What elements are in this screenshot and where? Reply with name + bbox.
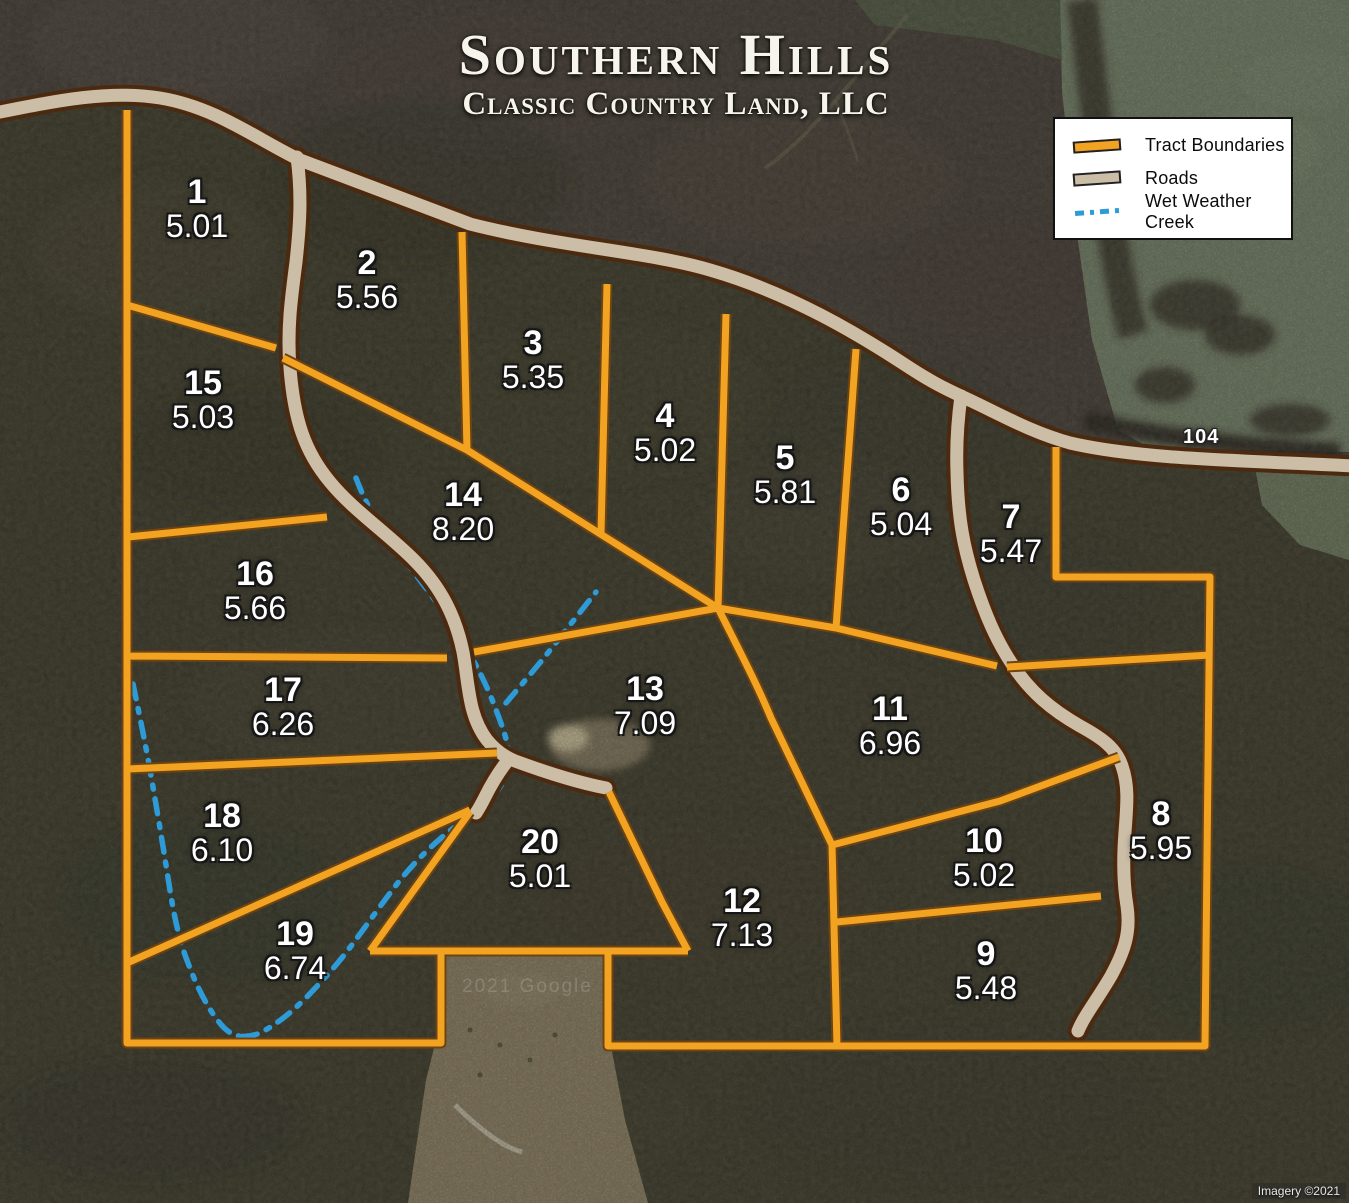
map-legend: Tract Boundaries Roads Wet Weather Creek: [1053, 117, 1293, 240]
map-title-block: Southern Hills Classic Country Land, LLC: [459, 26, 894, 123]
legend-item-tract-boundaries: Tract Boundaries: [1073, 129, 1291, 162]
creek-swatch-icon: [1073, 204, 1122, 219]
legend-label: Roads: [1145, 168, 1198, 189]
page-subtitle: Classic Country Land, LLC: [459, 86, 894, 123]
road-label-104: 104: [1183, 426, 1219, 449]
legend-label: Tract Boundaries: [1145, 135, 1285, 156]
imagery-watermark: 2021 Google: [462, 976, 593, 998]
map-canvas: 2021 Google Southern Hills Classic Count…: [0, 0, 1349, 1203]
road-swatch-icon: [1073, 170, 1122, 186]
page-title: Southern Hills: [459, 26, 894, 84]
legend-item-wet-weather-creek: Wet Weather Creek: [1073, 195, 1291, 228]
legend-label: Wet Weather Creek: [1145, 191, 1291, 233]
imagery-credit: Imagery ©2021: [1252, 1183, 1346, 1199]
tract-boundary-swatch-icon: [1073, 138, 1122, 153]
